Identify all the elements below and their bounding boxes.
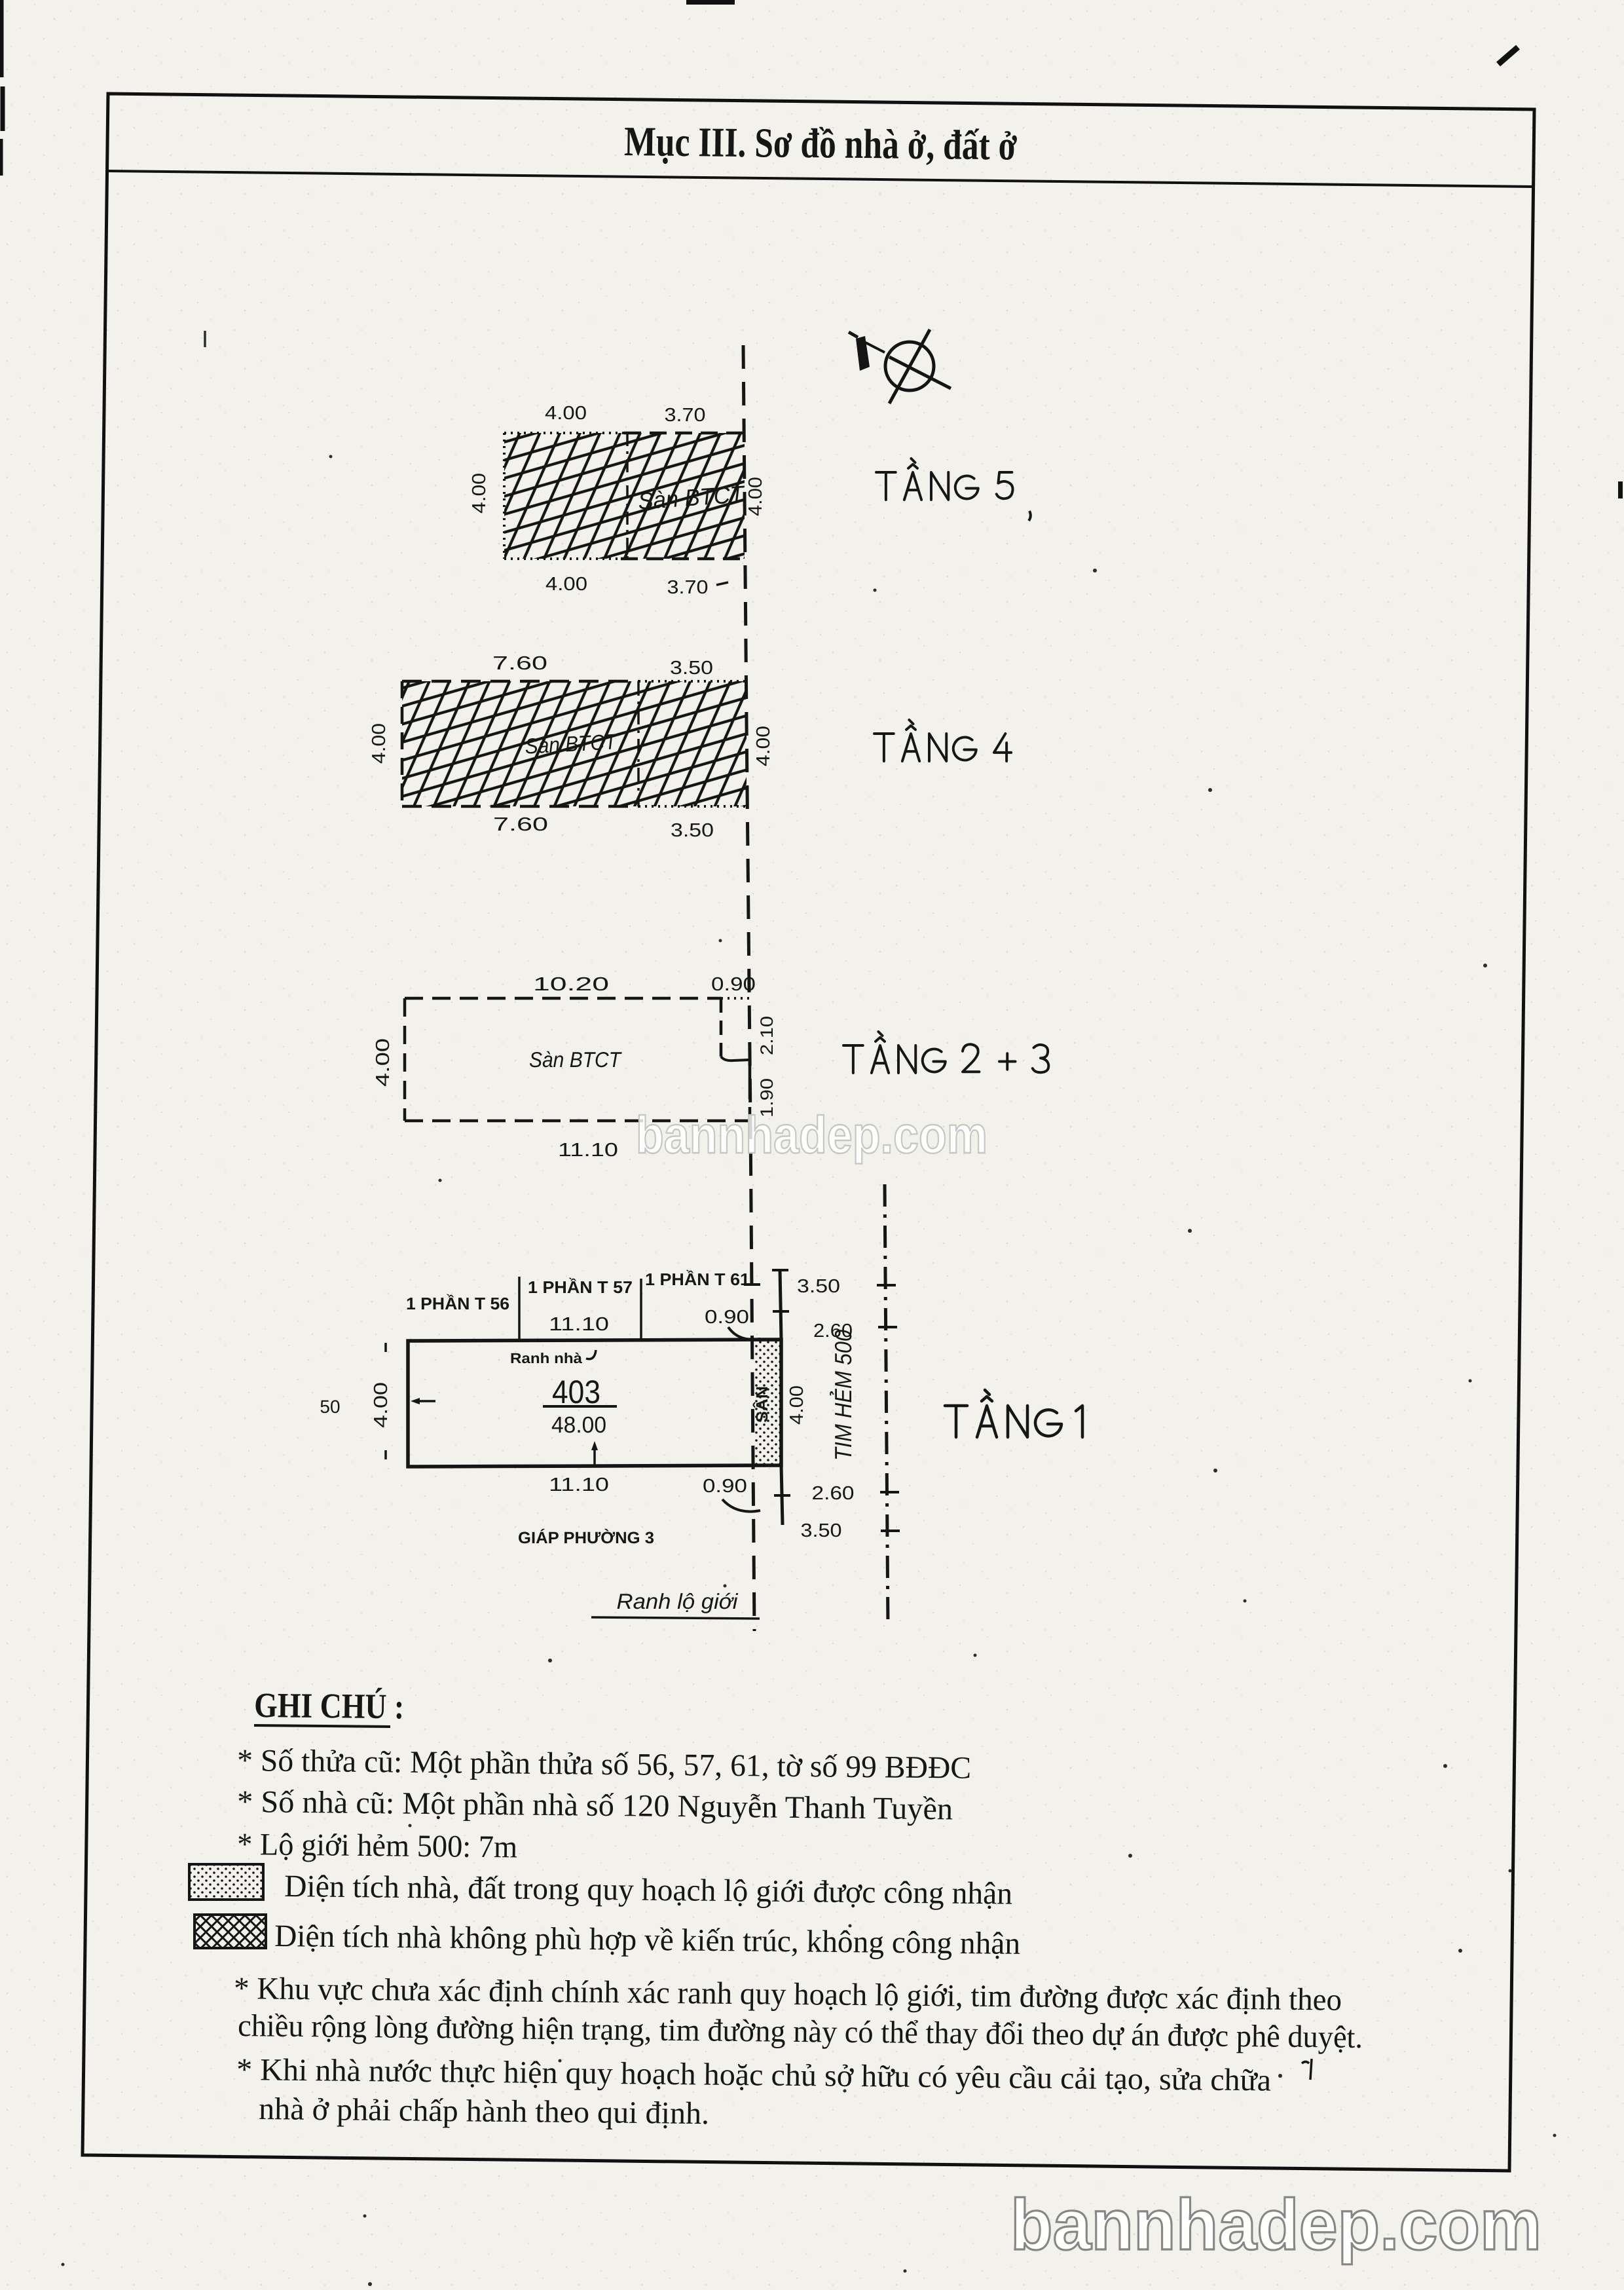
svg-text:GHI CHÚ :: GHI CHÚ :: [254, 1685, 405, 1726]
svg-text:bannhadep.com: bannhadep.com: [636, 1106, 987, 1164]
svg-text:7.60: 7.60: [492, 653, 547, 674]
svg-text:3.50: 3.50: [670, 658, 713, 679]
svg-text:3.50: 3.50: [671, 820, 714, 841]
svg-text:4.00: 4.00: [786, 1385, 807, 1425]
svg-text:4.00: 4.00: [373, 1038, 394, 1087]
svg-text:3.50: 3.50: [797, 1276, 840, 1297]
svg-text:1 PHẦN T 61: 1 PHẦN T 61: [645, 1269, 750, 1289]
svg-text:10.20: 10.20: [533, 974, 609, 995]
svg-text:Mục III. Sơ đồ nhà ở, đất ở: Mục III. Sơ đồ nhà ở, đất ở: [624, 118, 1018, 169]
svg-text:50: 50: [320, 1397, 340, 1417]
svg-text:bannhadep.com: bannhadep.com: [1010, 2185, 1541, 2265]
svg-text:4.00: 4.00: [469, 473, 490, 514]
svg-text:1 PHẦN T 57: 1 PHẦN T 57: [528, 1277, 633, 1297]
svg-text:GIÁP PHƯỜNG 3: GIÁP PHƯỜNG 3: [518, 1528, 654, 1547]
svg-text:4.00: 4.00: [745, 477, 766, 516]
svg-text:TIM HẺM 500: TIM HẺM 500: [830, 1330, 857, 1461]
svg-text:2.10: 2.10: [757, 1016, 777, 1055]
svg-text:48.00: 48.00: [551, 1412, 606, 1438]
svg-text:2.60: 2.60: [812, 1483, 855, 1504]
svg-text:Ranh nhà: Ranh nhà: [510, 1350, 583, 1366]
svg-text:* Lộ giới hẻm 500: 7m: * Lộ giới hẻm 500: 7m: [237, 1827, 518, 1864]
svg-text:nhà ở phải chấp hành theo qui: nhà ở phải chấp hành theo qui định.: [259, 2092, 710, 2131]
svg-text:11.10: 11.10: [558, 1140, 618, 1161]
svg-text:Sàn BTCT: Sàn BTCT: [525, 729, 619, 758]
svg-text:4.00: 4.00: [545, 403, 587, 424]
svg-text:11.10: 11.10: [549, 1314, 609, 1335]
svg-text:1 PHẦN T 56: 1 PHẦN T 56: [406, 1294, 509, 1313]
svg-text:Ranh lộ giới: Ranh lộ giới: [617, 1589, 739, 1613]
svg-text:7.60: 7.60: [493, 814, 548, 835]
svg-text:4.00: 4.00: [369, 723, 390, 764]
svg-text:11.10: 11.10: [549, 1474, 609, 1495]
svg-text:3.70: 3.70: [665, 405, 706, 426]
svg-text:403: 403: [552, 1374, 600, 1410]
svg-text:0.90: 0.90: [711, 974, 756, 995]
svg-text:0.90: 0.90: [703, 1476, 747, 1497]
svg-text:4.00: 4.00: [753, 726, 774, 766]
svg-text:4.00: 4.00: [371, 1382, 392, 1428]
svg-text:3.70: 3.70: [667, 577, 709, 598]
svg-text:4.00: 4.00: [545, 574, 587, 595]
svg-text:Sàn BTCT: Sàn BTCT: [529, 1047, 623, 1072]
svg-text:SÂN: SÂN: [752, 1386, 771, 1423]
svg-text:3.50: 3.50: [801, 1520, 842, 1541]
svg-text:0.90: 0.90: [705, 1307, 749, 1328]
